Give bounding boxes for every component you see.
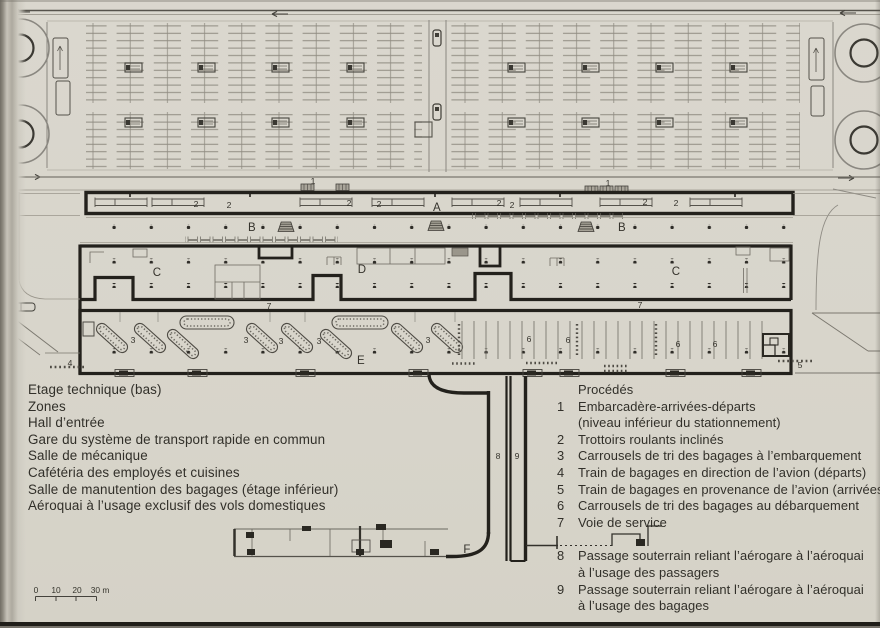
interior-partitions: [90, 247, 789, 299]
zone-label-c: C: [153, 267, 162, 279]
legend-item: Cafétéria des employés et cuisines: [28, 465, 338, 482]
process-number-label: 6: [566, 335, 571, 345]
legend-zones: Etage technique (bas) Zones Hall d’entré…: [28, 382, 338, 515]
bus-symbol: [433, 104, 441, 120]
process-number-label: 3: [131, 335, 136, 345]
underground-corridors: [429, 375, 526, 561]
process-number-label: 2: [510, 200, 515, 210]
page-top-edge: [0, 0, 880, 2]
item-number: 4: [548, 465, 578, 482]
process-number-label: 2: [194, 199, 199, 209]
process-number-label: 2: [674, 198, 679, 208]
item-number: 3: [548, 448, 578, 465]
item-text: Train de bagages en direction de l’avion…: [578, 465, 866, 482]
frontage-road: [8, 177, 880, 198]
zone-label-f: F: [463, 544, 470, 556]
scale-label: 30 m: [91, 585, 110, 595]
shelter-symbol: [809, 38, 824, 80]
legend-item: Salle de manutention des bagages (étage …: [28, 482, 338, 499]
scanned-floor-plan-page: ABBCDCEF11222222223333345666677890102030…: [0, 0, 880, 628]
legend-item-row: 2Trottoirs roulants inclinés: [548, 432, 880, 449]
zone-label-b: B: [618, 222, 626, 234]
scale-label: 0: [34, 585, 39, 595]
process-number-label: 6: [713, 339, 718, 349]
item-text: Carrousels de tri des bagages à l’embarq…: [578, 448, 861, 465]
zone-label-a: A: [433, 202, 441, 214]
legend-item-row: 4Train de bagages en direction de l’avio…: [548, 465, 880, 482]
legend-item: Gare du système de transport rapide en c…: [28, 432, 338, 449]
process-number-label: 1: [606, 178, 611, 188]
shelter-symbol: [811, 86, 824, 116]
process-number-label: 7: [638, 300, 643, 310]
vehicle-symbol: [11, 303, 35, 311]
process-number-label: 6: [527, 334, 532, 344]
zone-label-b: B: [248, 222, 256, 234]
item-text: (niveau inférieur du stationnement): [578, 415, 781, 432]
process-number-label: 3: [426, 335, 431, 345]
process-number-label: 4: [68, 358, 73, 368]
scale-bar: [36, 597, 97, 602]
item-text: Voie de service: [578, 515, 667, 532]
item-number: 6: [548, 498, 578, 515]
item-text: Embarcadère-arrivées-départs: [578, 399, 756, 416]
item-text: Passage souterrain reliant l’aérogare à …: [578, 582, 864, 599]
legend-procedes: Procédés 1Embarcadère-arrivées-départs (…: [548, 382, 880, 615]
legend-item-row: 1Embarcadère-arrivées-départs: [548, 399, 880, 416]
legend-item-row: 7Voie de service: [548, 515, 880, 532]
process-number-label: 3: [244, 335, 249, 345]
legend-item-row: à l’usage des passagers: [548, 565, 880, 582]
legend-subtitle: Zones: [28, 399, 338, 416]
item-number: 8: [548, 548, 578, 565]
item-number: 1: [548, 399, 578, 416]
scale-label: 10: [51, 585, 61, 595]
process-number-label: 3: [317, 336, 322, 346]
item-number: 9: [548, 582, 578, 599]
process-number-label: 7: [267, 301, 272, 311]
process-number-label: 1: [311, 176, 316, 186]
process-number-label: 6: [676, 339, 681, 349]
item-number: 2: [548, 432, 578, 449]
item-text: à l’usage des passagers: [578, 565, 719, 582]
legend-item: Aéroquai à l’usage exclusif des vols dom…: [28, 498, 338, 515]
legend-item: Hall d’entrée: [28, 415, 338, 432]
legend-item-row: 3Carrousels de tri des bagages à l’embar…: [548, 448, 880, 465]
zone-label-d: D: [358, 264, 367, 276]
legend-item-row: 9Passage souterrain reliant l’aérogare à…: [548, 582, 880, 599]
legend-item-row: à l’usage des bagages: [548, 598, 880, 615]
item-text: Trottoirs roulants inclinés: [578, 432, 724, 449]
shelter-symbol: [56, 81, 70, 115]
page-right-edge: [875, 0, 880, 628]
legend-item-row: (niveau inférieur du stationnement): [548, 415, 880, 432]
parking-area: [0, 9, 880, 180]
legend-title: Etage technique (bas): [28, 382, 338, 399]
process-number-label: 2: [643, 197, 648, 207]
item-text: Train de bagages en provenance de l’avio…: [578, 482, 880, 499]
process-number-label: 2: [347, 198, 352, 208]
item-number: 5: [548, 482, 578, 499]
legend-item: Salle de mécanique: [28, 448, 338, 465]
process-number-label: 8: [496, 451, 501, 461]
zone-label-e: E: [357, 355, 365, 367]
item-number: 7: [548, 515, 578, 532]
bus-symbol: [433, 30, 441, 46]
legend-item-row: 6Carrousels de tri des bagages au débarq…: [548, 498, 880, 515]
counter-strip: [472, 213, 624, 219]
zone-e-block: [80, 311, 791, 374]
process-number-label: 2: [497, 198, 502, 208]
zone-label-c: C: [672, 266, 681, 278]
item-text: Carrousels de tri des bagages au débarqu…: [578, 498, 859, 515]
counter-strip: [185, 237, 338, 243]
process-number-label: 9: [515, 451, 520, 461]
legend-title: Procédés: [578, 382, 633, 399]
process-number-label: 2: [377, 199, 382, 209]
item-text: à l’usage des bagages: [578, 598, 709, 615]
process-number-label: 5: [798, 360, 803, 370]
item-text: Passage souterrain reliant l’aérogare à …: [578, 548, 864, 565]
process-number-label: 2: [227, 200, 232, 210]
process-number-label: 3: [279, 336, 284, 346]
scale-label: 20: [72, 585, 82, 595]
legend-item-row: 8Passage souterrain reliant l’aérogare à…: [548, 548, 880, 565]
top-road: [8, 11, 880, 15]
legend-title-row: Procédés: [548, 382, 880, 399]
shelter-symbol: [53, 38, 68, 78]
legend-item-row: 5Train de bagages en provenance de l’avi…: [548, 482, 880, 499]
